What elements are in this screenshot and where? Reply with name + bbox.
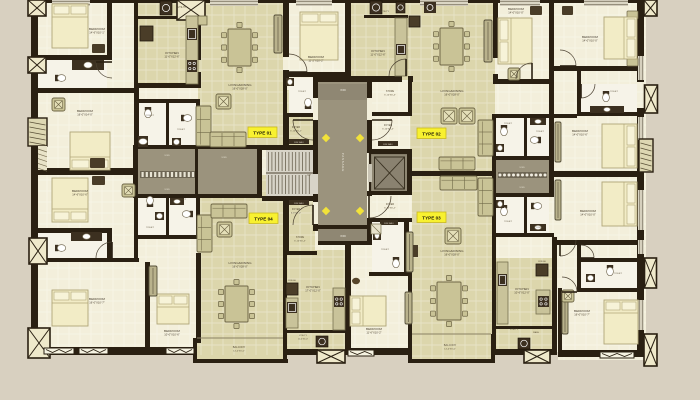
- svg-text:STORE: STORE: [386, 90, 395, 93]
- svg-text:TYPE 03: TYPE 03: [422, 216, 441, 221]
- svg-text:KITCHEN: KITCHEN: [371, 49, 385, 53]
- svg-text:SIDE WALK: SIDE WALK: [294, 141, 305, 144]
- svg-text:TYPE 01: TYPE 01: [253, 131, 272, 136]
- svg-text:14'-6"X10'-1": 14'-6"X10'-1": [89, 31, 105, 35]
- svg-text:LIVING&DINING: LIVING&DINING: [440, 249, 464, 253]
- svg-text:VOID: VOID: [340, 89, 346, 92]
- svg-text:UP: UP: [307, 174, 311, 177]
- svg-text:TOILET: TOILET: [536, 227, 544, 229]
- svg-text:TOILET: TOILET: [610, 91, 618, 93]
- svg-text:STORE: STORE: [296, 236, 305, 239]
- svg-text:6'-10"X6'-4": 6'-10"X6'-4": [294, 241, 306, 243]
- svg-text:VOID: VOID: [340, 235, 346, 238]
- svg-text:KITCHEN: KITCHEN: [165, 51, 179, 55]
- svg-text:16'-0"X10'-7": 16'-0"X10'-7": [89, 301, 105, 305]
- svg-text:SIDE WALK: SIDE WALK: [383, 143, 394, 146]
- svg-text:11'-0"X12'-6": 11'-0"X12'-6": [164, 55, 179, 59]
- svg-text:UTILITY: UTILITY: [178, 6, 187, 9]
- svg-text:11'-2"X10'-2": 11'-2"X10'-2": [308, 59, 323, 63]
- svg-text:14'-0"X10'-0": 14'-0"X10'-0": [580, 213, 596, 217]
- svg-text:TYPE 02: TYPE 02: [422, 132, 441, 137]
- svg-text:UTILITY: UTILITY: [381, 11, 390, 13]
- svg-text:LIVING&DINING: LIVING&DINING: [228, 261, 252, 265]
- svg-text:14'-0"X5'-0": 14'-0"X5'-0": [233, 351, 245, 353]
- svg-text:6'-10"X6'-4": 6'-10"X6'-4": [382, 129, 394, 131]
- svg-text:VOID: VOID: [164, 189, 170, 191]
- svg-text:FRIDGE: FRIDGE: [538, 261, 546, 263]
- svg-text:FOYER: FOYER: [292, 126, 301, 129]
- svg-text:6'-10"X6'-2": 6'-10"X6'-2": [384, 208, 396, 210]
- svg-text:TOILET: TOILET: [146, 115, 154, 117]
- svg-text:11'-0"X12'-6": 11'-0"X12'-6": [370, 53, 385, 57]
- svg-text:16'-0"X28'-0": 16'-0"X28'-0": [232, 87, 248, 91]
- svg-text:BALCONY: BALCONY: [233, 345, 246, 349]
- svg-text:BEDROOM: BEDROOM: [164, 329, 180, 333]
- svg-text:11'-0"X5'-0": 11'-0"X5'-0": [298, 339, 309, 341]
- svg-text:11'-6"X10'-2": 11'-6"X10'-2": [366, 331, 381, 335]
- svg-text:BEDROOM: BEDROOM: [366, 327, 382, 331]
- svg-text:14'-0"X10'-0": 14'-0"X10'-0": [508, 11, 524, 15]
- svg-text:VOID: VOID: [164, 155, 170, 157]
- svg-text:17'-0"X12'-0": 17'-0"X12'-0": [305, 289, 321, 293]
- svg-text:BEDROOM: BEDROOM: [572, 129, 588, 133]
- svg-text:WASH: WASH: [533, 331, 539, 334]
- svg-text:FRIDGE: FRIDGE: [288, 280, 296, 282]
- svg-text:14'-6"X10'-6": 14'-6"X10'-6": [72, 193, 88, 197]
- svg-text:UTILITY: UTILITY: [299, 335, 308, 337]
- svg-text:BEDROOM: BEDROOM: [582, 35, 598, 39]
- svg-text:10'-0"X10'-6": 10'-0"X10'-6": [164, 333, 180, 337]
- svg-text:10'-6"X12'-0": 10'-6"X12'-0": [514, 291, 530, 295]
- svg-text:BEDROOM: BEDROOM: [77, 109, 93, 113]
- svg-text:16'-0"X28'-0": 16'-0"X28'-0": [232, 265, 248, 269]
- svg-text:P A S S A G E: P A S S A G E: [341, 153, 345, 172]
- svg-text:16'-0"X10'-7": 16'-0"X10'-7": [574, 313, 590, 317]
- svg-text:TOILET: TOILET: [504, 221, 512, 223]
- svg-text:TOILET: TOILET: [381, 249, 389, 251]
- svg-text:KITCHEN: KITCHEN: [306, 285, 320, 289]
- svg-text:BEDROOM: BEDROOM: [72, 189, 88, 193]
- svg-text:TOILET: TOILET: [536, 131, 544, 133]
- svg-text:14'-0"X5'-0": 14'-0"X5'-0": [444, 349, 456, 351]
- svg-text:TOILET: TOILET: [178, 199, 186, 201]
- svg-text:BEDROOM: BEDROOM: [89, 297, 105, 301]
- svg-text:BEDROOM: BEDROOM: [89, 27, 105, 31]
- svg-text:6'-10"X6'-4": 6'-10"X6'-4": [384, 95, 396, 97]
- svg-text:BALCONY: BALCONY: [444, 343, 457, 347]
- svg-text:14'-0"X10'-6": 14'-0"X10'-6": [572, 133, 588, 137]
- svg-text:16'-0"X28'-0": 16'-0"X28'-0": [444, 253, 460, 257]
- svg-text:BEDROOM: BEDROOM: [580, 209, 596, 213]
- svg-text:16'-0"X28'-0": 16'-0"X28'-0": [444, 93, 460, 97]
- svg-text:VOID: VOID: [221, 157, 227, 159]
- svg-text:BEDROOM: BEDROOM: [308, 55, 324, 59]
- svg-text:TOILET: TOILET: [177, 129, 185, 131]
- svg-text:TOILET: TOILET: [146, 227, 154, 229]
- svg-text:LIVING&DINING: LIVING&DINING: [228, 83, 252, 87]
- svg-text:TOILET: TOILET: [504, 123, 512, 125]
- svg-text:LIVING&DINING: LIVING&DINING: [440, 89, 464, 93]
- svg-text:UTILITY: UTILITY: [510, 329, 519, 331]
- svg-text:BEDROOM: BEDROOM: [574, 309, 590, 313]
- svg-text:TOILET: TOILET: [298, 91, 306, 93]
- svg-text:16'-0"X14'-0": 16'-0"X14'-0": [77, 113, 93, 117]
- svg-text:TOILET: TOILET: [614, 273, 622, 275]
- svg-text:SIDE WALK: SIDE WALK: [384, 222, 395, 225]
- svg-text:14'-0"X10'-0": 14'-0"X10'-0": [582, 39, 598, 43]
- svg-text:BEDROOM: BEDROOM: [508, 7, 524, 11]
- svg-text:KITCHEN: KITCHEN: [515, 287, 529, 291]
- svg-text:TYPE 04: TYPE 04: [254, 217, 273, 222]
- svg-text:VOID: VOID: [519, 187, 525, 189]
- svg-text:SIDE WALK: SIDE WALK: [294, 202, 305, 205]
- svg-text:VOID: VOID: [519, 167, 525, 169]
